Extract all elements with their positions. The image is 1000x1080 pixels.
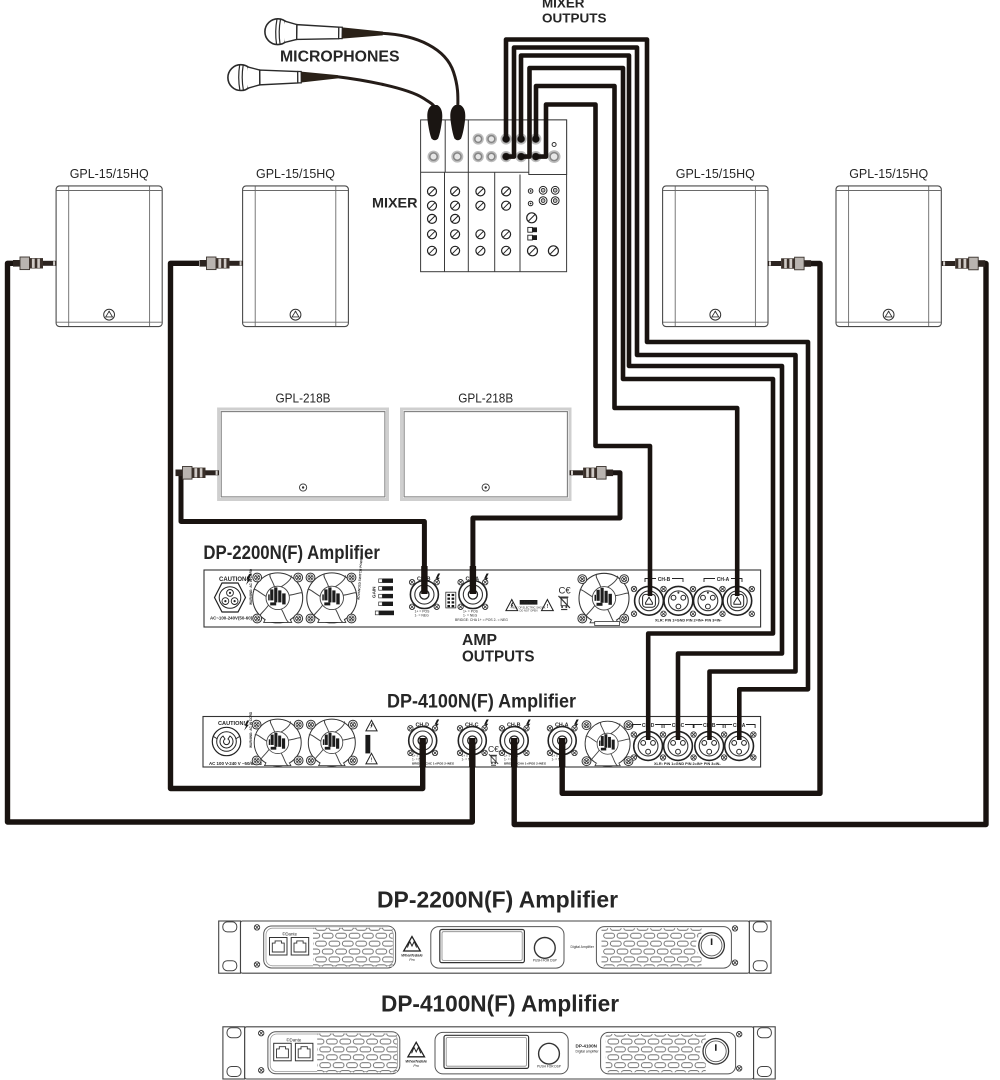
svg-text:Wharfedale: Wharfedale — [401, 953, 423, 958]
svg-text:CH-A: CH-A — [717, 577, 730, 583]
svg-text:BRIDGE: CHA 1+ = POS 2- = NEG: BRIDGE: CHA 1+ = POS 2- = NEG — [455, 618, 508, 622]
svg-text:MIXER: MIXER — [542, 0, 585, 11]
svg-text:Digital Amplifier: Digital Amplifier — [571, 945, 595, 949]
svg-text:AC~100-240V(50-60)Hz: AC~100-240V(50-60)Hz — [210, 616, 258, 621]
svg-text:GPL-15/15HQ: GPL-15/15HQ — [70, 166, 149, 181]
svg-text:MICROPHONES: MICROPHONES — [280, 49, 400, 66]
svg-text:1- = NEG: 1- = NEG — [463, 613, 478, 617]
svg-text:GAIN: GAIN — [372, 586, 377, 598]
svg-text:DO NOT OPEN: DO NOT OPEN — [519, 608, 537, 612]
svg-text:CH-B: CH-B — [658, 577, 671, 583]
svg-text:DP-2200N(F) Amplifier: DP-2200N(F) Amplifier — [377, 886, 618, 912]
svg-text:CAUTION!: CAUTION! — [218, 721, 245, 727]
svg-text:©Dante: ©Dante — [282, 932, 298, 937]
svg-text:PUSH FOR DSP: PUSH FOR DSP — [533, 959, 557, 963]
svg-text:XLR: PIN 1=GND PIN 2=IN+ PIN: XLR: PIN 1=GND PIN 2=IN+ PIN 3=IN- — [654, 762, 721, 766]
svg-text:Digital amplifier: Digital amplifier — [576, 1050, 600, 1054]
svg-text:GPL-15/15HQ: GPL-15/15HQ — [256, 166, 335, 181]
svg-text:BRIDGE: CHA 1+/POS 2-/NEG: BRIDGE: CHA 1+/POS 2-/NEG — [504, 761, 547, 765]
svg-text:C€: C€ — [488, 744, 499, 754]
svg-text:Pro: Pro — [409, 958, 415, 962]
svg-text:OUTPUTS: OUTPUTS — [462, 648, 535, 665]
svg-text:CAUTION: CAUTION — [521, 601, 537, 605]
svg-text:OUTPUTS: OUTPUTS — [542, 11, 607, 26]
svg-text:C€: C€ — [559, 586, 572, 597]
svg-text:1- = NEG: 1- = NEG — [415, 613, 430, 617]
svg-text:XLR: PIN 1=GND PIN 2=IN+ PIN: XLR: PIN 1=GND PIN 2=IN+ PIN 3=IN- — [655, 619, 722, 623]
svg-text:!: ! — [546, 604, 548, 610]
svg-text:CAUTION!: CAUTION! — [219, 577, 248, 583]
svg-text:WARNING: AC IN CORD: WARNING: AC IN CORD — [249, 711, 253, 748]
svg-text:BRIDGE: CHC 1+/POS 2-/NEG: BRIDGE: CHC 1+/POS 2-/NEG — [412, 761, 455, 765]
svg-text:DP-4100N(F) Amplifier: DP-4100N(F) Amplifier — [387, 691, 576, 713]
svg-text:MIXER: MIXER — [372, 196, 418, 211]
svg-text:DP-4100N(F) Amplifier: DP-4100N(F) Amplifier — [381, 991, 619, 1017]
svg-text:GPL-15/15HQ: GPL-15/15HQ — [676, 166, 755, 181]
svg-text:GPL-218B: GPL-218B — [276, 391, 331, 406]
svg-text:GPL-218B: GPL-218B — [458, 391, 513, 406]
svg-text:DP-2200N(F) Amplifier: DP-2200N(F) Amplifier — [203, 542, 380, 564]
svg-text:GPL-15/15HQ: GPL-15/15HQ — [849, 166, 928, 181]
svg-text:DP-4100N: DP-4100N — [576, 1044, 598, 1049]
svg-text:AMP: AMP — [462, 632, 497, 649]
